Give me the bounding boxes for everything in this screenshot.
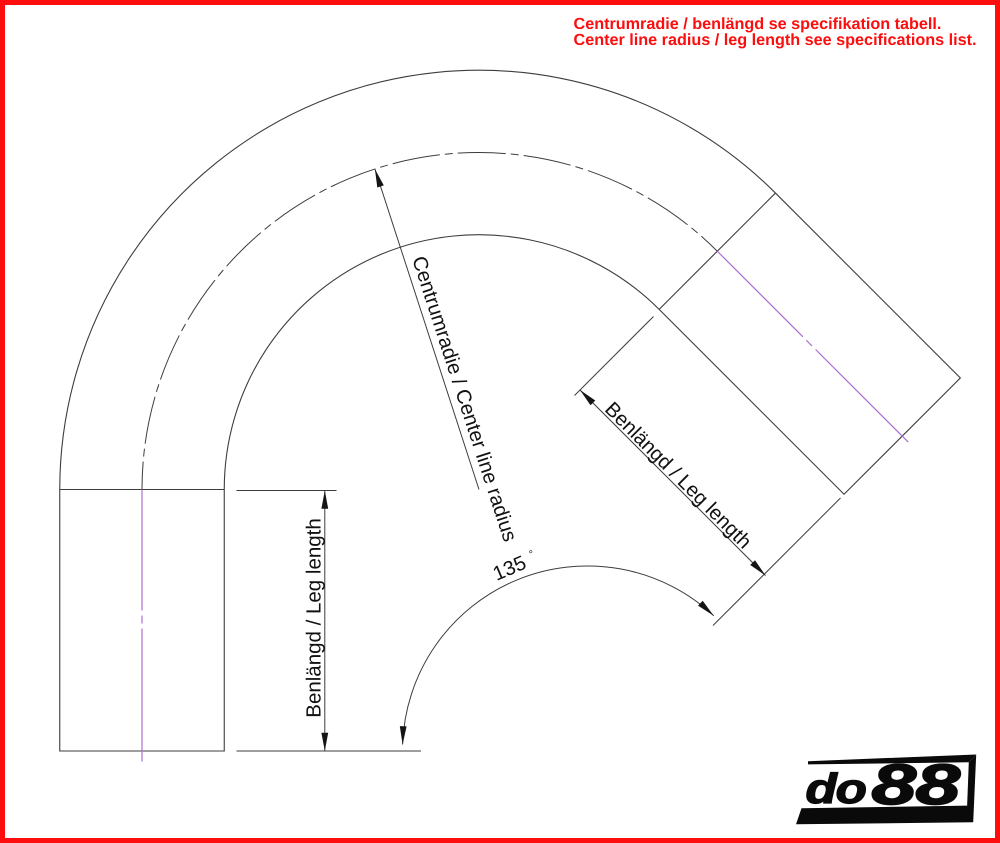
svg-text:Benlängd / Leg length: Benlängd / Leg length — [600, 398, 755, 553]
svg-text:135°: 135° — [490, 548, 540, 586]
svg-text:do: do — [806, 765, 867, 812]
svg-text:Benlängd / Leg length: Benlängd / Leg length — [303, 518, 326, 717]
svg-text:88: 88 — [872, 753, 961, 817]
svg-text:Center line radius / leg lengt: Center line radius / leg length see spec… — [574, 31, 977, 49]
svg-text:Centrumradie / Center line rad: Centrumradie / Center line radius — [407, 254, 520, 545]
